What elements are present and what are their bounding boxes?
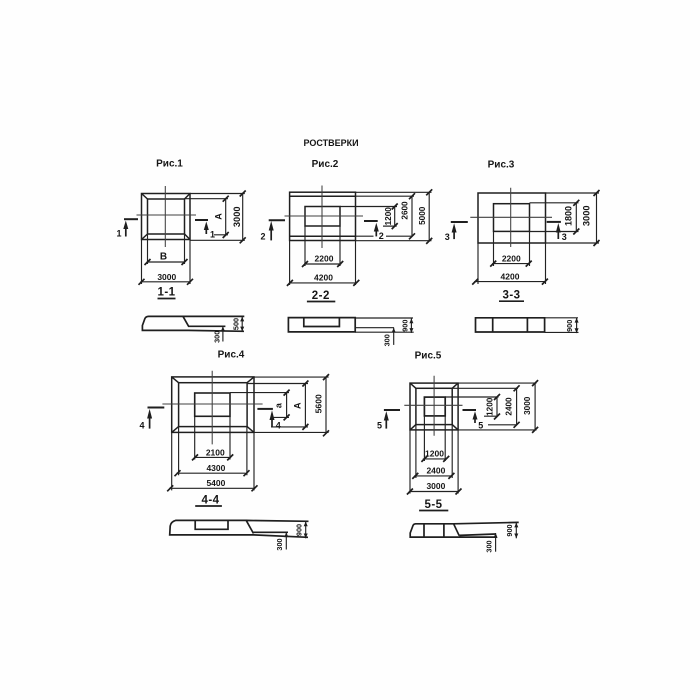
svg-text:5600: 5600: [313, 394, 323, 413]
svg-text:2-2: 2-2: [312, 290, 330, 302]
svg-text:5400: 5400: [206, 478, 225, 488]
svg-text:3000: 3000: [523, 396, 532, 415]
svg-text:3000: 3000: [582, 205, 592, 226]
svg-text:2400: 2400: [505, 397, 514, 416]
svg-text:Рис.1: Рис.1: [156, 159, 183, 170]
svg-text:5000: 5000: [418, 206, 427, 225]
svg-text:5: 5: [377, 421, 382, 431]
svg-text:4200: 4200: [501, 271, 520, 281]
svg-text:Рис.2: Рис.2: [312, 159, 339, 170]
svg-text:1200: 1200: [485, 397, 494, 416]
svg-text:3000: 3000: [232, 206, 242, 227]
svg-text:300: 300: [212, 331, 221, 343]
svg-text:1-1: 1-1: [157, 287, 175, 299]
svg-text:3000: 3000: [157, 272, 176, 282]
svg-text:1200: 1200: [425, 449, 444, 459]
svg-text:900: 900: [294, 524, 303, 536]
svg-text:4300: 4300: [206, 463, 225, 473]
svg-text:2100: 2100: [206, 447, 225, 457]
svg-text:РОСТВЕРКИ: РОСТВЕРКИ: [303, 138, 358, 148]
svg-text:2400: 2400: [426, 466, 445, 476]
svg-text:3: 3: [562, 232, 567, 242]
svg-text:300: 300: [484, 540, 493, 552]
svg-text:3000: 3000: [426, 481, 445, 491]
svg-text:А: А: [214, 213, 224, 220]
svg-text:3: 3: [445, 232, 450, 242]
svg-text:1200: 1200: [384, 207, 393, 226]
svg-text:2600: 2600: [401, 201, 410, 220]
svg-text:Рис.4: Рис.4: [218, 350, 245, 361]
svg-text:4: 4: [276, 421, 281, 431]
svg-text:900: 900: [400, 320, 409, 332]
svg-text:500: 500: [231, 318, 240, 330]
svg-text:4-4: 4-4: [201, 495, 219, 507]
svg-text:В: В: [160, 252, 167, 263]
svg-text:2: 2: [260, 232, 265, 242]
svg-text:5: 5: [478, 421, 483, 431]
svg-text:900: 900: [505, 524, 514, 536]
svg-text:1: 1: [116, 229, 121, 239]
svg-text:2: 2: [379, 231, 384, 241]
svg-text:3-3: 3-3: [502, 290, 520, 302]
svg-text:4200: 4200: [314, 272, 333, 282]
svg-text:300: 300: [383, 334, 392, 346]
svg-text:Рис.5: Рис.5: [415, 351, 442, 362]
svg-text:300: 300: [275, 538, 284, 550]
svg-text:5-5: 5-5: [424, 499, 442, 511]
svg-text:Рис.3: Рис.3: [488, 160, 515, 171]
svg-text:2200: 2200: [315, 254, 334, 264]
svg-text:А: А: [292, 402, 302, 409]
svg-text:900: 900: [565, 320, 574, 332]
svg-text:4: 4: [139, 421, 144, 431]
svg-text:1800: 1800: [563, 206, 573, 226]
svg-text:2200: 2200: [502, 253, 521, 263]
